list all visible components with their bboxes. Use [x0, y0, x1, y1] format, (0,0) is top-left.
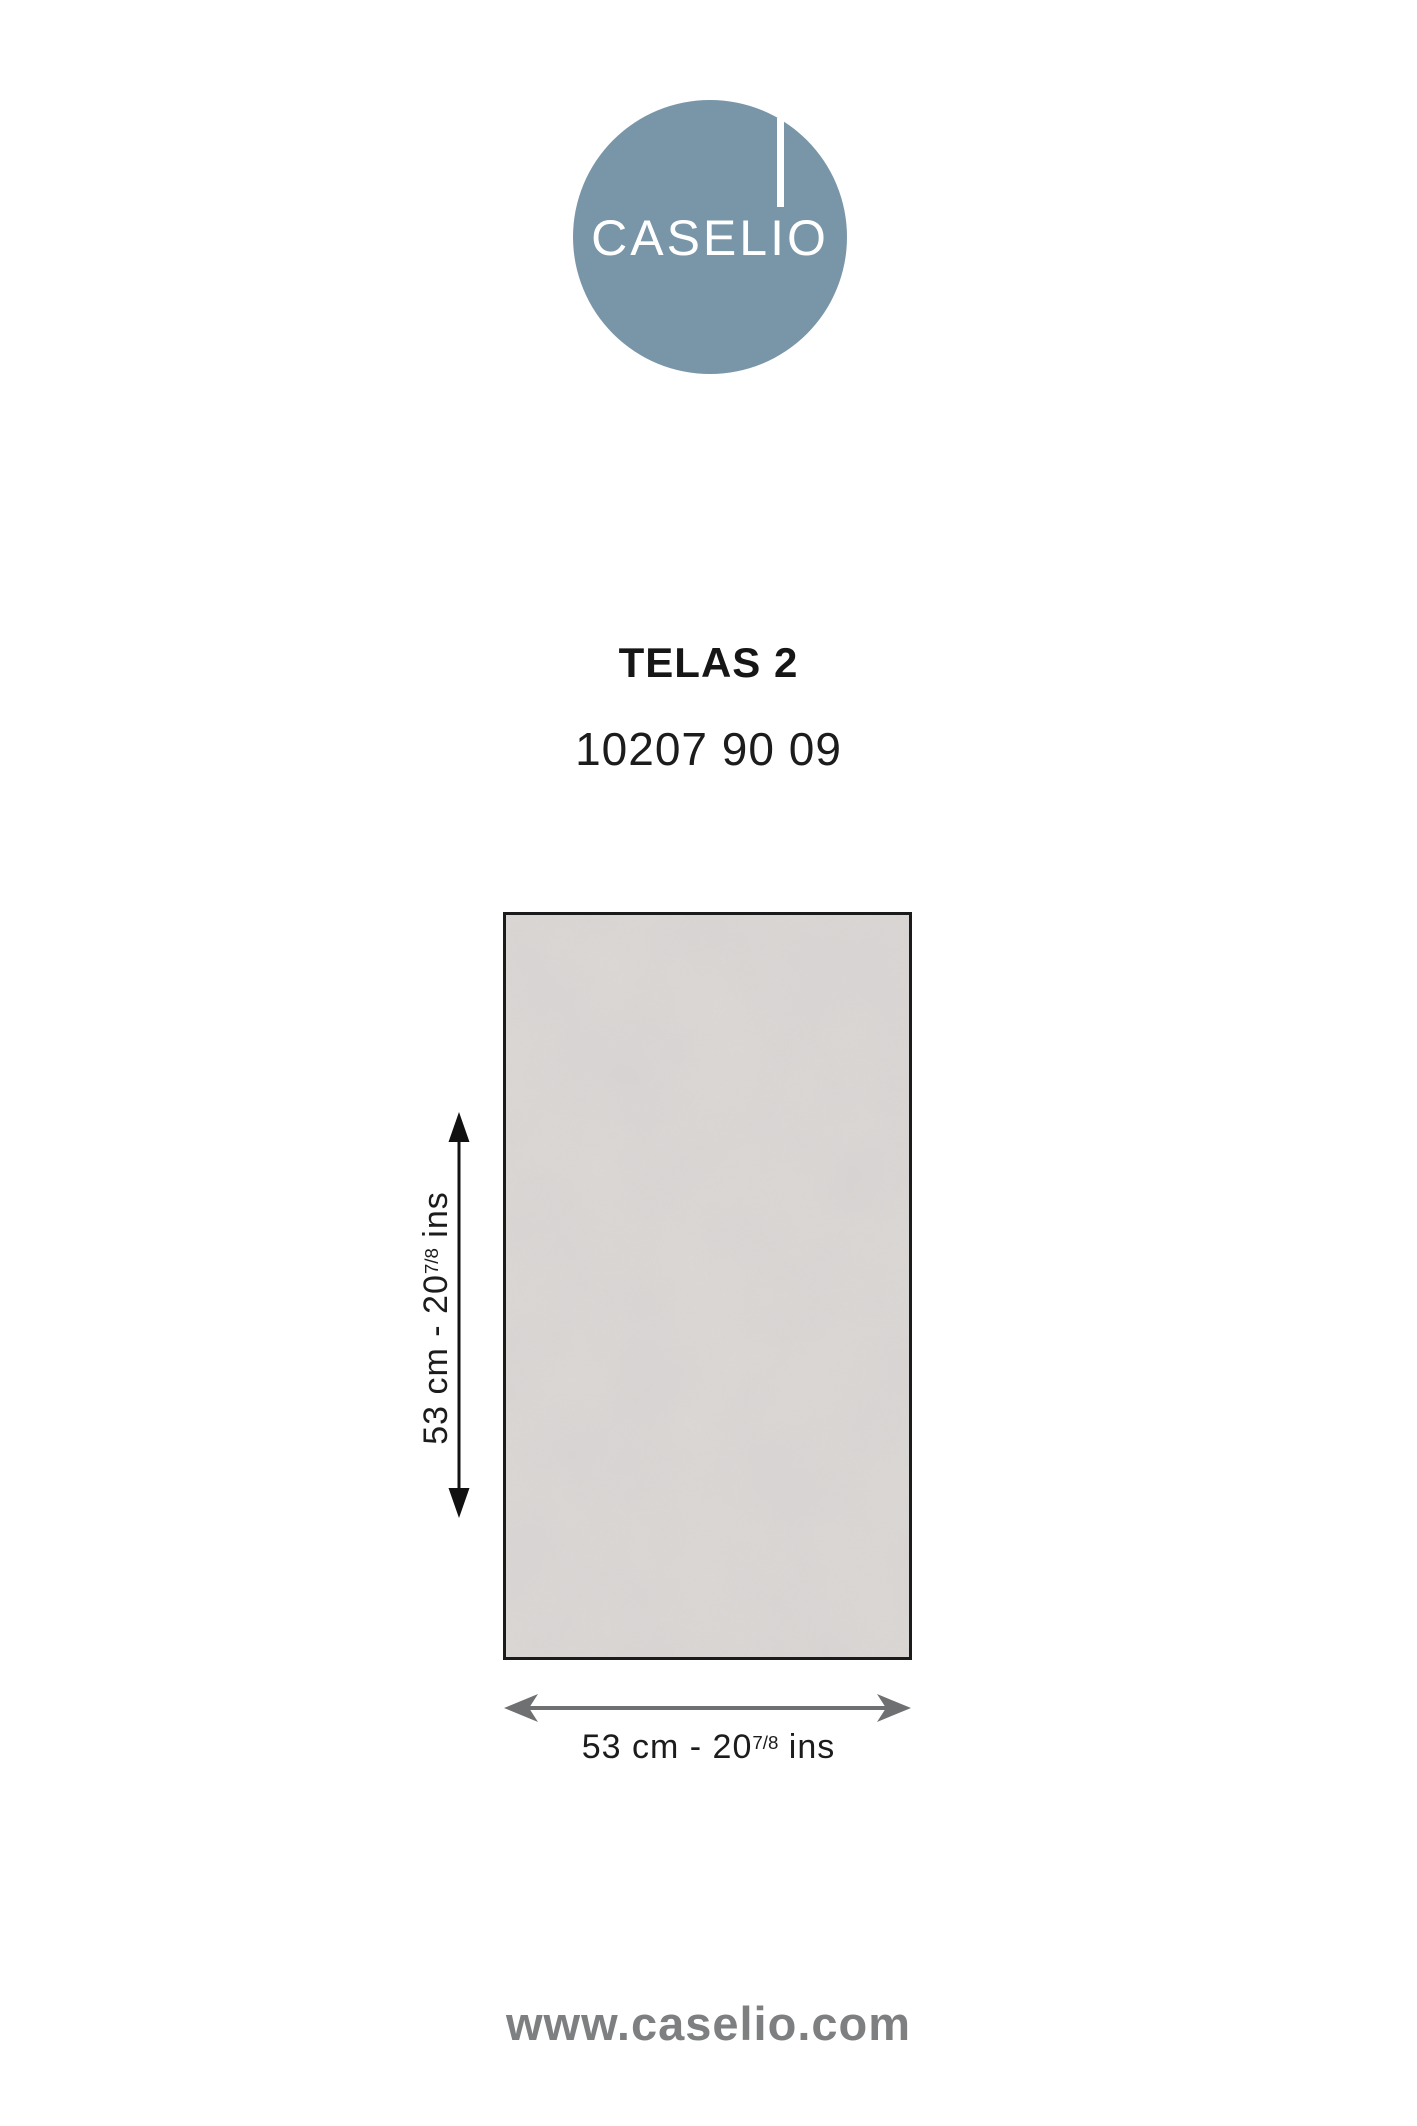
logo-accent-bar-icon	[777, 118, 784, 207]
collection-name: TELAS 2	[0, 642, 1417, 684]
logo-wordmark: CASELIO	[573, 213, 847, 263]
width-label-prefix: 53 cm - 20	[582, 1728, 753, 1766]
caselio-logo: CASELIO	[573, 100, 847, 374]
website-link[interactable]: www.caselio.com	[0, 2000, 1417, 2047]
product-reference: 10207 90 09	[0, 726, 1417, 772]
wallpaper-swatch-image	[503, 912, 912, 1660]
width-dimension-label: 53 cm - 207/8 ins	[0, 1730, 1417, 1764]
height-dimension-label: 53 cm - 207/8 ins	[419, 1191, 453, 1445]
width-dimension-arrow-icon	[503, 1692, 912, 1724]
width-label-suffix: ins	[778, 1728, 835, 1766]
width-label-fraction: 7/8	[752, 1732, 778, 1753]
product-sheet-page: CASELIO TELAS 2 10207 90 09	[0, 0, 1417, 2126]
height-label-prefix: 53 cm - 20	[417, 1274, 455, 1445]
height-label-suffix: ins	[417, 1191, 455, 1248]
height-label-fraction: 7/8	[421, 1248, 442, 1274]
